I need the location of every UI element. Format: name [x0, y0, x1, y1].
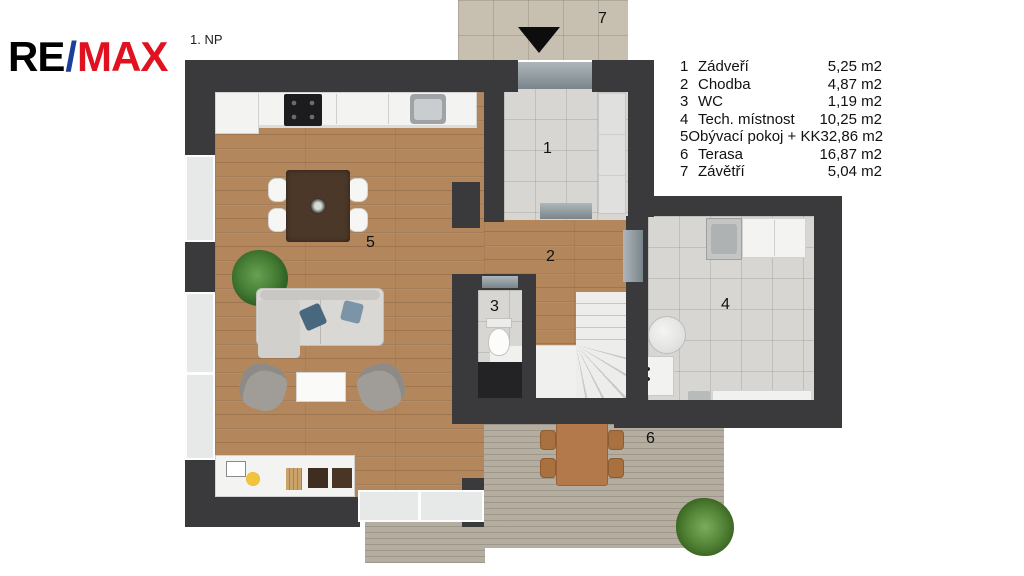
sideboard-box	[308, 468, 328, 488]
terrace-chair	[608, 458, 624, 478]
door-porch-entry	[518, 62, 592, 89]
counter-seam	[388, 94, 389, 124]
sofa-back	[260, 290, 380, 300]
room-number-tech: 4	[721, 296, 730, 314]
wall-segment	[452, 182, 480, 228]
tech-cabinet-seam	[774, 220, 775, 256]
wall-segment	[185, 497, 360, 527]
kitchen-sink-basin	[414, 99, 442, 120]
staircase	[576, 292, 628, 345]
dining-chair	[268, 178, 288, 202]
dining-chair	[348, 178, 368, 202]
wall-segment	[185, 242, 215, 292]
dining-chair	[268, 208, 288, 232]
door-wc	[482, 276, 518, 288]
room-number-entry: 1	[543, 140, 552, 158]
coffee-table	[296, 372, 346, 402]
wall-segment	[452, 274, 478, 400]
wall-segment	[452, 398, 628, 424]
wall-segment	[185, 60, 215, 155]
door-tech-room	[623, 230, 643, 282]
kitchen-corner-cabinet	[215, 92, 259, 134]
door-entry-hallway	[540, 203, 592, 219]
boiler-icon	[648, 316, 686, 354]
wall-segment	[628, 196, 842, 216]
window-mullion	[418, 492, 421, 520]
terrace-sliding-door	[358, 490, 484, 522]
wall-segment	[484, 60, 504, 222]
wall-segment	[614, 400, 842, 428]
counter-seam	[336, 94, 337, 124]
window	[185, 155, 215, 242]
wall-segment	[814, 196, 842, 428]
table-centerpiece	[310, 198, 326, 214]
room-number-living: 5	[366, 234, 375, 252]
terrace-plant	[676, 498, 734, 556]
dining-chair	[348, 208, 368, 232]
wall-segment	[628, 60, 654, 217]
window	[185, 292, 215, 460]
room-number-porch: 7	[598, 10, 607, 28]
toilet-bowl	[488, 328, 510, 356]
entrance-arrow-icon	[518, 27, 560, 53]
room-number-wc: 3	[490, 298, 499, 316]
wall-segment	[440, 60, 518, 92]
wall-segment	[185, 60, 457, 92]
understair-storage	[470, 362, 524, 398]
terrace-chair	[608, 430, 624, 450]
utility-sink-basin	[711, 224, 737, 254]
terrace-chair	[540, 430, 556, 450]
wardrobe	[598, 92, 626, 214]
floor-plan: 1 2 3 4 5 6 7	[0, 0, 1024, 576]
sideboard-picture	[226, 461, 246, 477]
toilet-icon	[486, 318, 512, 328]
sideboard-books	[286, 468, 302, 490]
sideboard-box	[332, 468, 352, 488]
terrace-table	[556, 420, 608, 486]
sideboard-bowl	[246, 472, 260, 486]
sofa-chaise	[258, 300, 300, 358]
cooktop-icon	[284, 94, 322, 126]
terrace-chair	[540, 458, 556, 478]
room-number-hallway: 2	[546, 248, 555, 266]
room-number-terrace: 6	[646, 430, 655, 448]
window-mullion	[187, 372, 213, 375]
staircase-winders	[576, 345, 628, 398]
wall-segment	[522, 274, 536, 400]
